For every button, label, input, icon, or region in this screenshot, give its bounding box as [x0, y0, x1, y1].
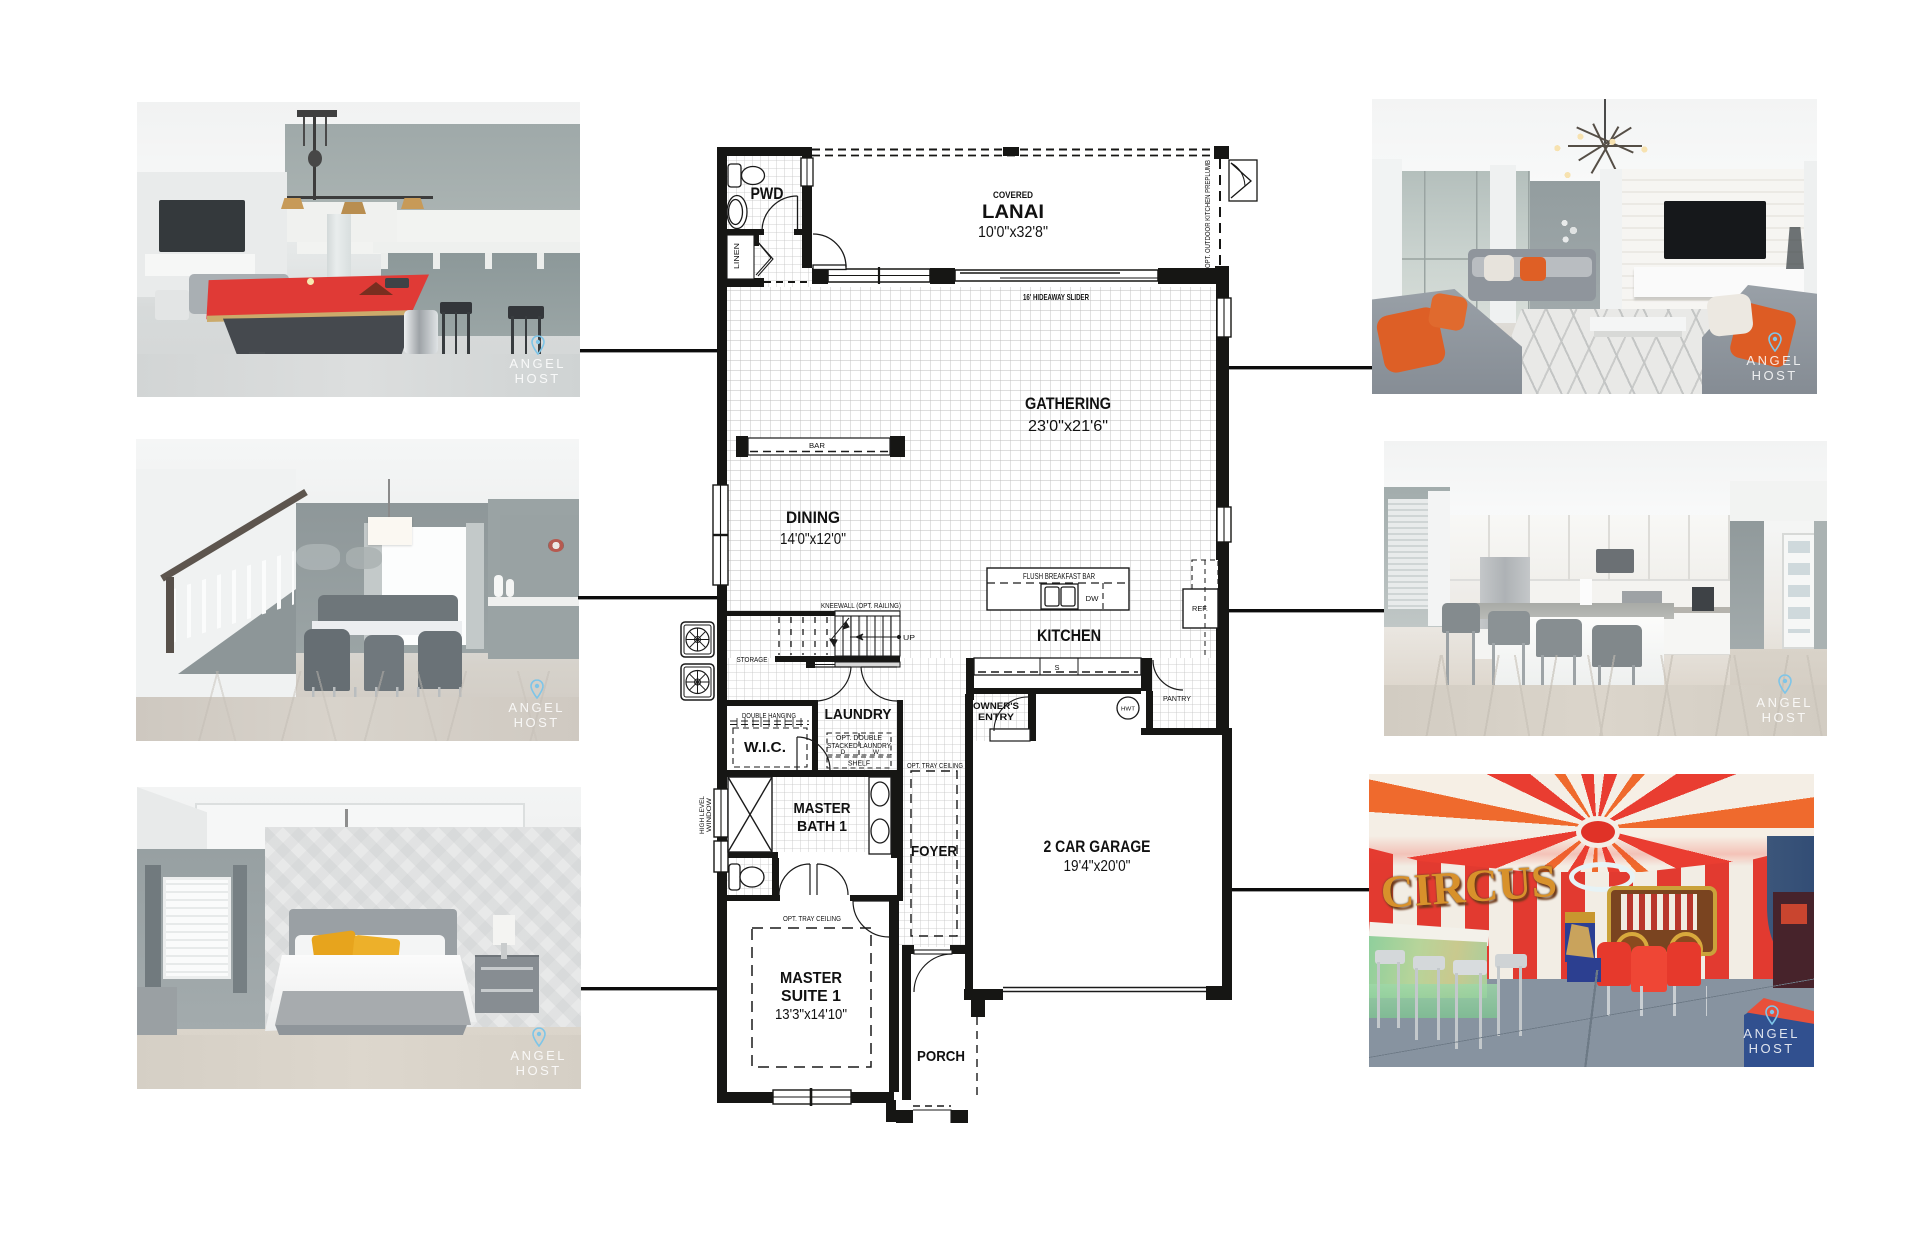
svg-text:BAR: BAR	[809, 443, 825, 450]
svg-text:GATHERING: GATHERING	[1025, 394, 1111, 413]
svg-text:FLUSH BREAKFAST BAR: FLUSH BREAKFAST BAR	[1023, 572, 1095, 581]
svg-text:MASTER: MASTER	[794, 801, 851, 817]
svg-text:HWT: HWT	[1121, 707, 1136, 713]
svg-text:BATH 1: BATH 1	[797, 819, 847, 835]
svg-text:10'0"x32'8": 10'0"x32'8"	[978, 224, 1048, 241]
svg-text:23'0"x21'6": 23'0"x21'6"	[1028, 418, 1108, 435]
svg-text:LAUNDRY: LAUNDRY	[825, 707, 892, 723]
svg-text:MASTER: MASTER	[780, 970, 842, 987]
svg-text:LINEN: LINEN	[732, 243, 741, 269]
svg-text:KITCHEN: KITCHEN	[1037, 626, 1101, 645]
svg-text:2 CAR GARAGE: 2 CAR GARAGE	[1044, 837, 1151, 856]
svg-text:OPT. TRAY CEILING: OPT. TRAY CEILING	[783, 914, 841, 923]
svg-text:STACKED LAUNDRY: STACKED LAUNDRY	[827, 743, 891, 750]
svg-text:14'0"x12'0": 14'0"x12'0"	[780, 531, 846, 548]
svg-text:PWD: PWD	[751, 184, 784, 203]
svg-text:WINDOW: WINDOW	[706, 797, 713, 832]
svg-text:DW: DW	[1086, 596, 1099, 603]
svg-text:STORAGE: STORAGE	[737, 655, 768, 664]
svg-text:OWNER'S: OWNER'S	[973, 701, 1019, 711]
svg-text:LANAI: LANAI	[982, 202, 1044, 223]
svg-text:PORCH: PORCH	[917, 1048, 965, 1065]
svg-text:REF.: REF.	[1192, 604, 1208, 613]
svg-text:13'3"x14'10": 13'3"x14'10"	[775, 1006, 847, 1023]
svg-text:16' HIDEAWAY SLIDER: 16' HIDEAWAY SLIDER	[1023, 292, 1089, 302]
svg-text:SUITE 1: SUITE 1	[781, 988, 841, 1005]
svg-text:HIGH LEVEL: HIGH LEVEL	[699, 796, 706, 834]
svg-text:PANTRY: PANTRY	[1163, 694, 1191, 703]
svg-text:COVERED: COVERED	[993, 190, 1033, 200]
svg-text:OPT. DOUBLE: OPT. DOUBLE	[836, 735, 882, 742]
svg-text:ENTRY: ENTRY	[978, 712, 1014, 722]
svg-text:FOYER: FOYER	[911, 843, 957, 860]
svg-text:W.I.C.: W.I.C.	[744, 740, 786, 756]
svg-text:KNEEWALL (OPT. RAILING): KNEEWALL (OPT. RAILING)	[821, 603, 901, 610]
svg-text:UP: UP	[903, 633, 915, 642]
svg-text:SHELF: SHELF	[848, 761, 870, 768]
svg-text:W: W	[873, 749, 880, 756]
svg-text:19'4"x20'0": 19'4"x20'0"	[1064, 858, 1131, 875]
svg-text:DINING: DINING	[786, 508, 840, 527]
svg-text:OPT. TRAY CEILING: OPT. TRAY CEILING	[907, 761, 963, 770]
svg-text:S: S	[1055, 665, 1060, 672]
svg-text:D: D	[841, 749, 846, 756]
svg-text:OPT. OUTDOOR KITCHEN PREPLUMB: OPT. OUTDOOR KITCHEN PREPLUMB	[1203, 160, 1212, 268]
svg-text:DOUBLE HANGING: DOUBLE HANGING	[742, 713, 796, 720]
